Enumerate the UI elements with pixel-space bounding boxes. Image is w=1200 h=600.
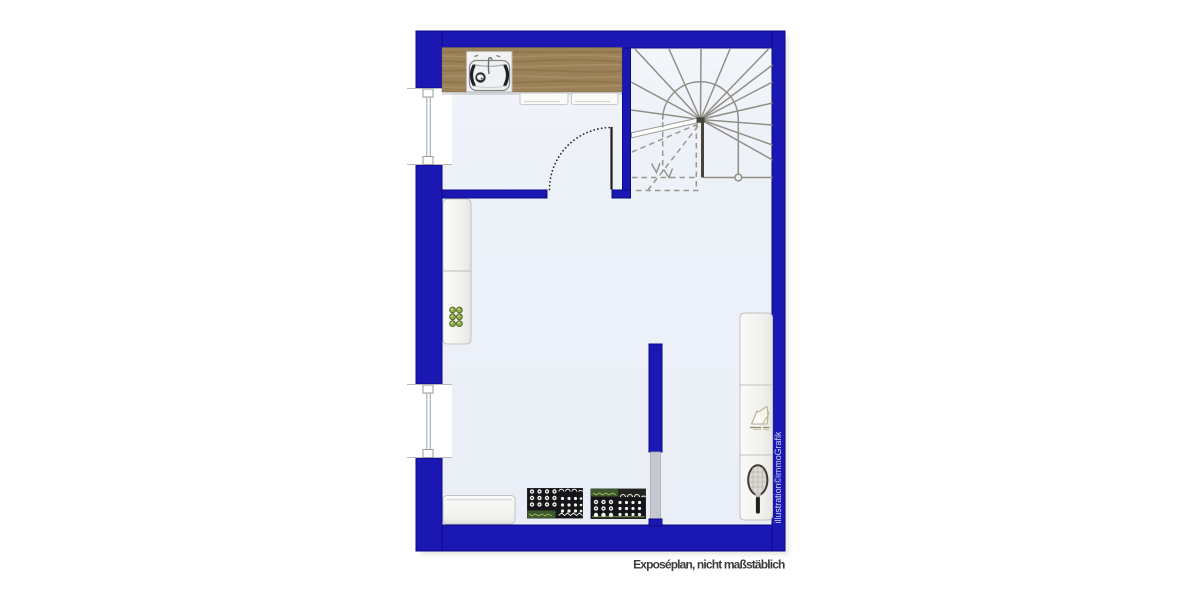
svg-text:illustration©immoGrafik: illustration©immoGrafik	[773, 431, 783, 523]
svg-text:Exposéplan, nicht maßstäblich: Exposéplan, nicht maßstäblich	[633, 558, 785, 572]
